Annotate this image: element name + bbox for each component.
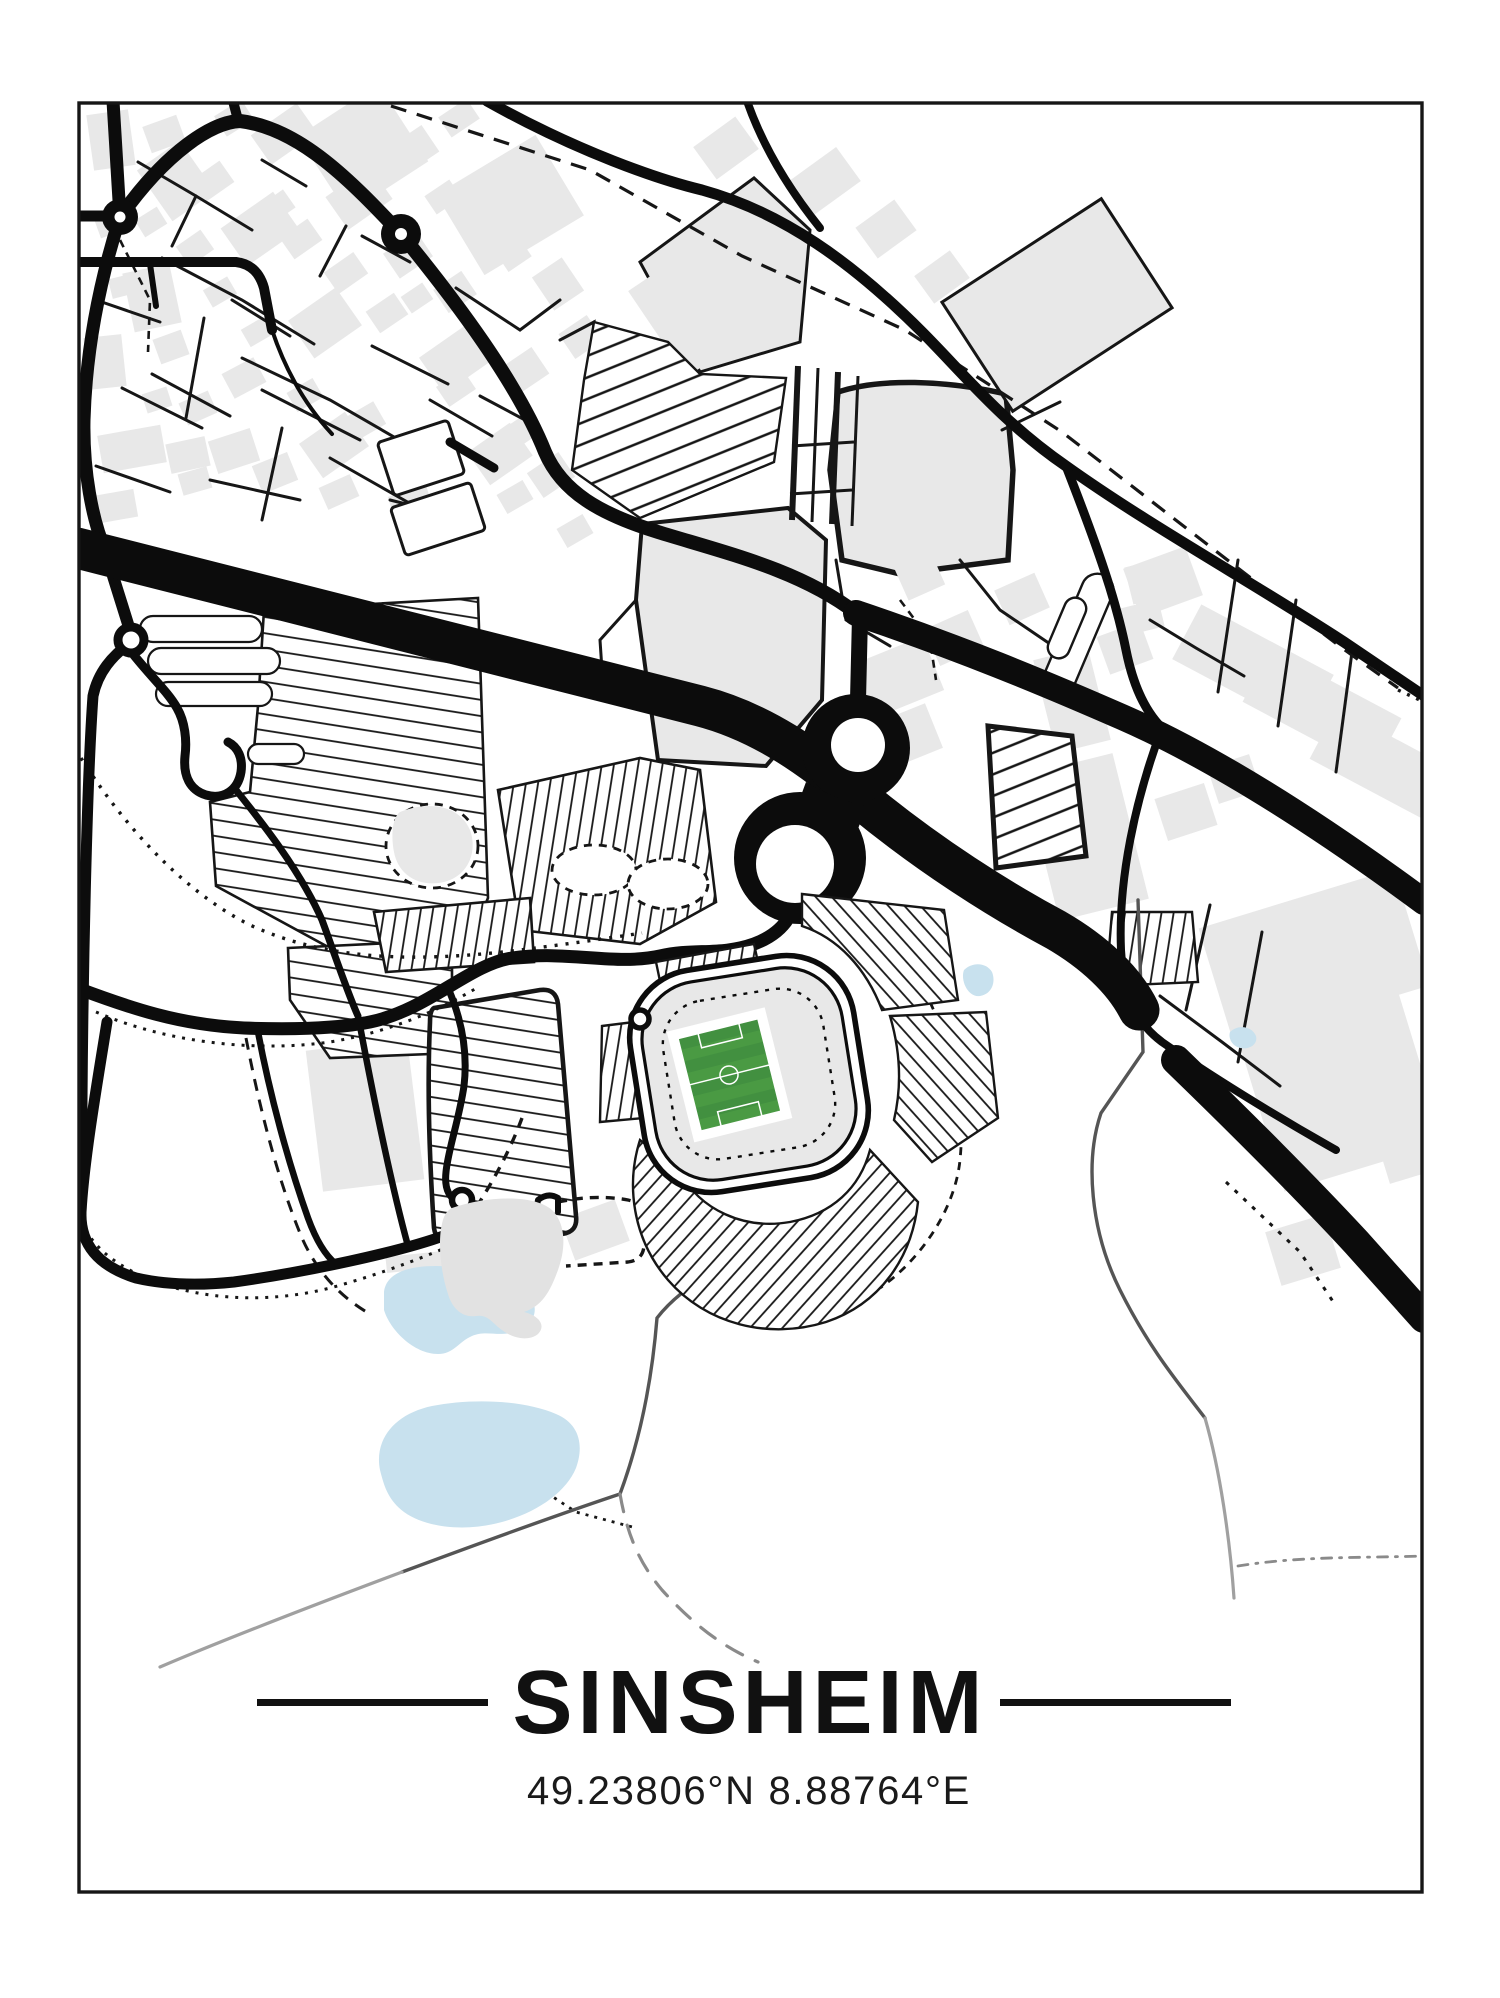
svg-text:SINSHEIM: SINSHEIM	[512, 1653, 987, 1753]
svg-text:49.23806°N 8.88764°E: 49.23806°N 8.88764°E	[527, 1769, 971, 1813]
